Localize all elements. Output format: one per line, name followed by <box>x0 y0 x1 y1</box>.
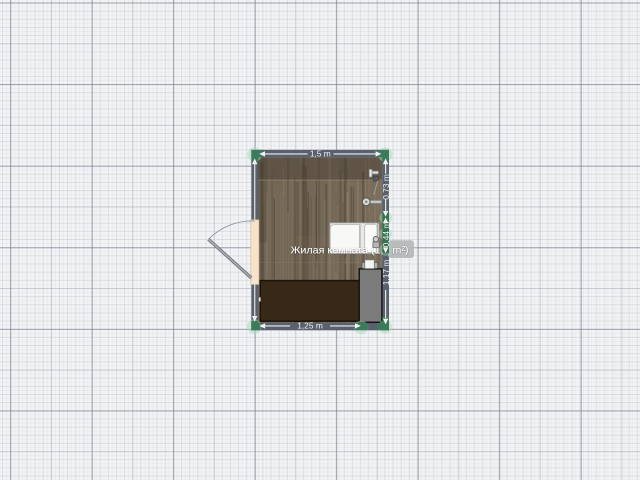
svg-text:1,25 m: 1,25 m <box>297 321 323 331</box>
svg-text:1,5 m: 1,5 m <box>310 149 331 159</box>
svg-text:0,44 m: 0,44 m <box>381 222 391 248</box>
svg-text:0,73 m: 0,73 m <box>381 174 391 200</box>
svg-text:1,17 m: 1,17 m <box>381 260 391 286</box>
